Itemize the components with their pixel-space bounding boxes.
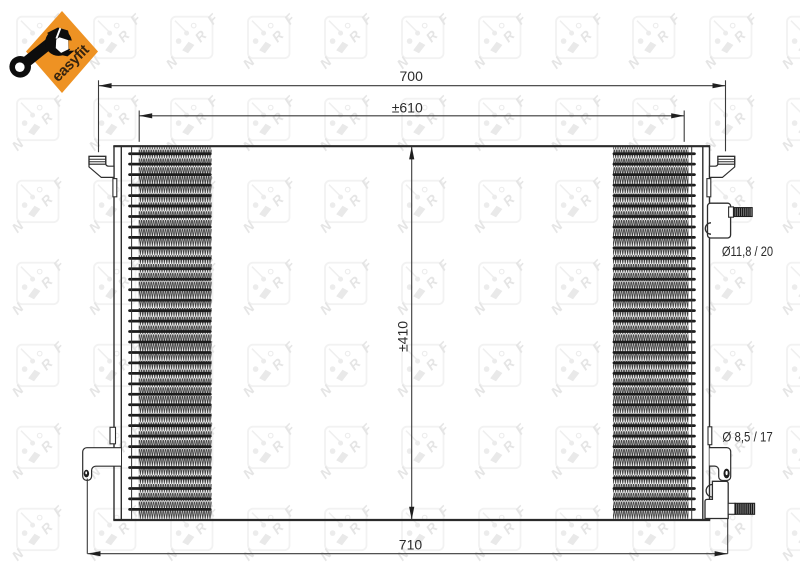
svg-text:710: 710: [399, 537, 423, 553]
svg-text:±610: ±610: [392, 100, 423, 116]
svg-text:Ø11,8 / 20: Ø11,8 / 20: [722, 243, 773, 259]
svg-text:700: 700: [400, 68, 424, 84]
svg-text:Ø 8,5 / 17: Ø 8,5 / 17: [722, 429, 772, 445]
svg-text:±410: ±410: [395, 321, 411, 352]
